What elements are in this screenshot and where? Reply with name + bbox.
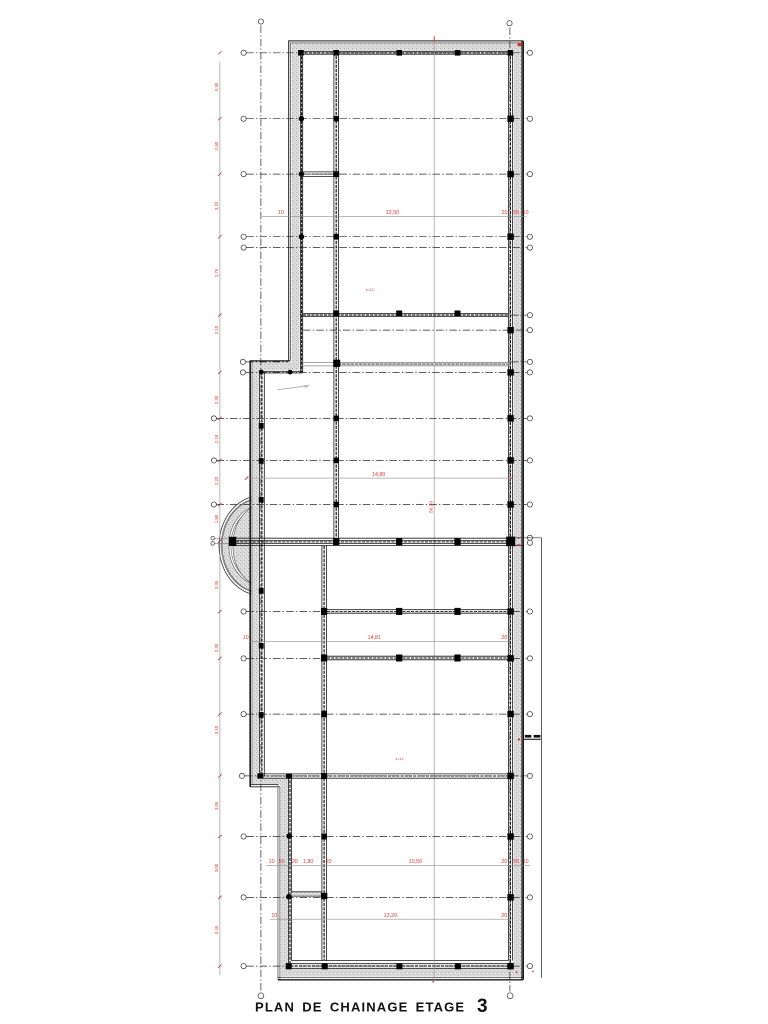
svg-text:PLAN DE CHAINAGE ETAGE: PLAN DE CHAINAGE ETAGE — [255, 999, 465, 1014]
svg-text:14,80: 14,80 — [372, 472, 385, 478]
svg-text:3,10: 3,10 — [214, 201, 219, 210]
svg-text:14,81: 14,81 — [368, 635, 381, 641]
svg-text:2,75: 2,75 — [214, 268, 219, 277]
svg-text:56,90: 56,90 — [429, 501, 435, 513]
svg-text:10: 10 — [278, 210, 284, 216]
svg-text:10: 10 — [243, 635, 249, 641]
svg-text:2,10: 2,10 — [214, 325, 219, 334]
svg-text:13,20: 13,20 — [384, 913, 397, 919]
svg-text:3,30: 3,30 — [214, 82, 219, 91]
svg-text:2,20: 2,20 — [214, 476, 219, 485]
svg-text:20: 20 — [326, 859, 332, 865]
svg-text:55: 55 — [513, 859, 519, 865]
svg-text:3,05: 3,05 — [214, 801, 219, 810]
svg-text:20: 20 — [292, 859, 298, 865]
svg-text:2,30: 2,30 — [214, 643, 219, 652]
svg-text:3,00: 3,00 — [214, 863, 219, 872]
svg-text:20: 20 — [502, 210, 508, 216]
svg-text:10: 10 — [523, 859, 529, 865]
svg-text:10: 10 — [523, 210, 529, 216]
svg-text:20: 20 — [501, 859, 507, 865]
svg-text:2,30: 2,30 — [214, 395, 219, 404]
svg-text:3,35: 3,35 — [214, 580, 219, 589]
svg-text:55: 55 — [513, 210, 519, 216]
svg-text:s=14: s=14 — [396, 757, 404, 761]
svg-text:3: 3 — [477, 996, 488, 1017]
svg-text:s=12: s=12 — [366, 288, 374, 292]
svg-text:1,80: 1,80 — [303, 859, 313, 865]
svg-text:20: 20 — [501, 913, 507, 919]
svg-text:2,80: 2,80 — [214, 141, 219, 150]
svg-text:10: 10 — [271, 913, 277, 919]
svg-text:12,50: 12,50 — [386, 210, 399, 216]
svg-text:20: 20 — [501, 635, 507, 641]
svg-text:10: 10 — [269, 859, 275, 865]
svg-text:2,10: 2,10 — [214, 434, 219, 443]
svg-text:50: 50 — [279, 859, 285, 865]
svg-text:3,45: 3,45 — [214, 925, 219, 934]
svg-text:10,50: 10,50 — [409, 859, 422, 865]
svg-text:3,10: 3,10 — [214, 725, 219, 734]
svg-text:1,80: 1,80 — [214, 514, 219, 523]
